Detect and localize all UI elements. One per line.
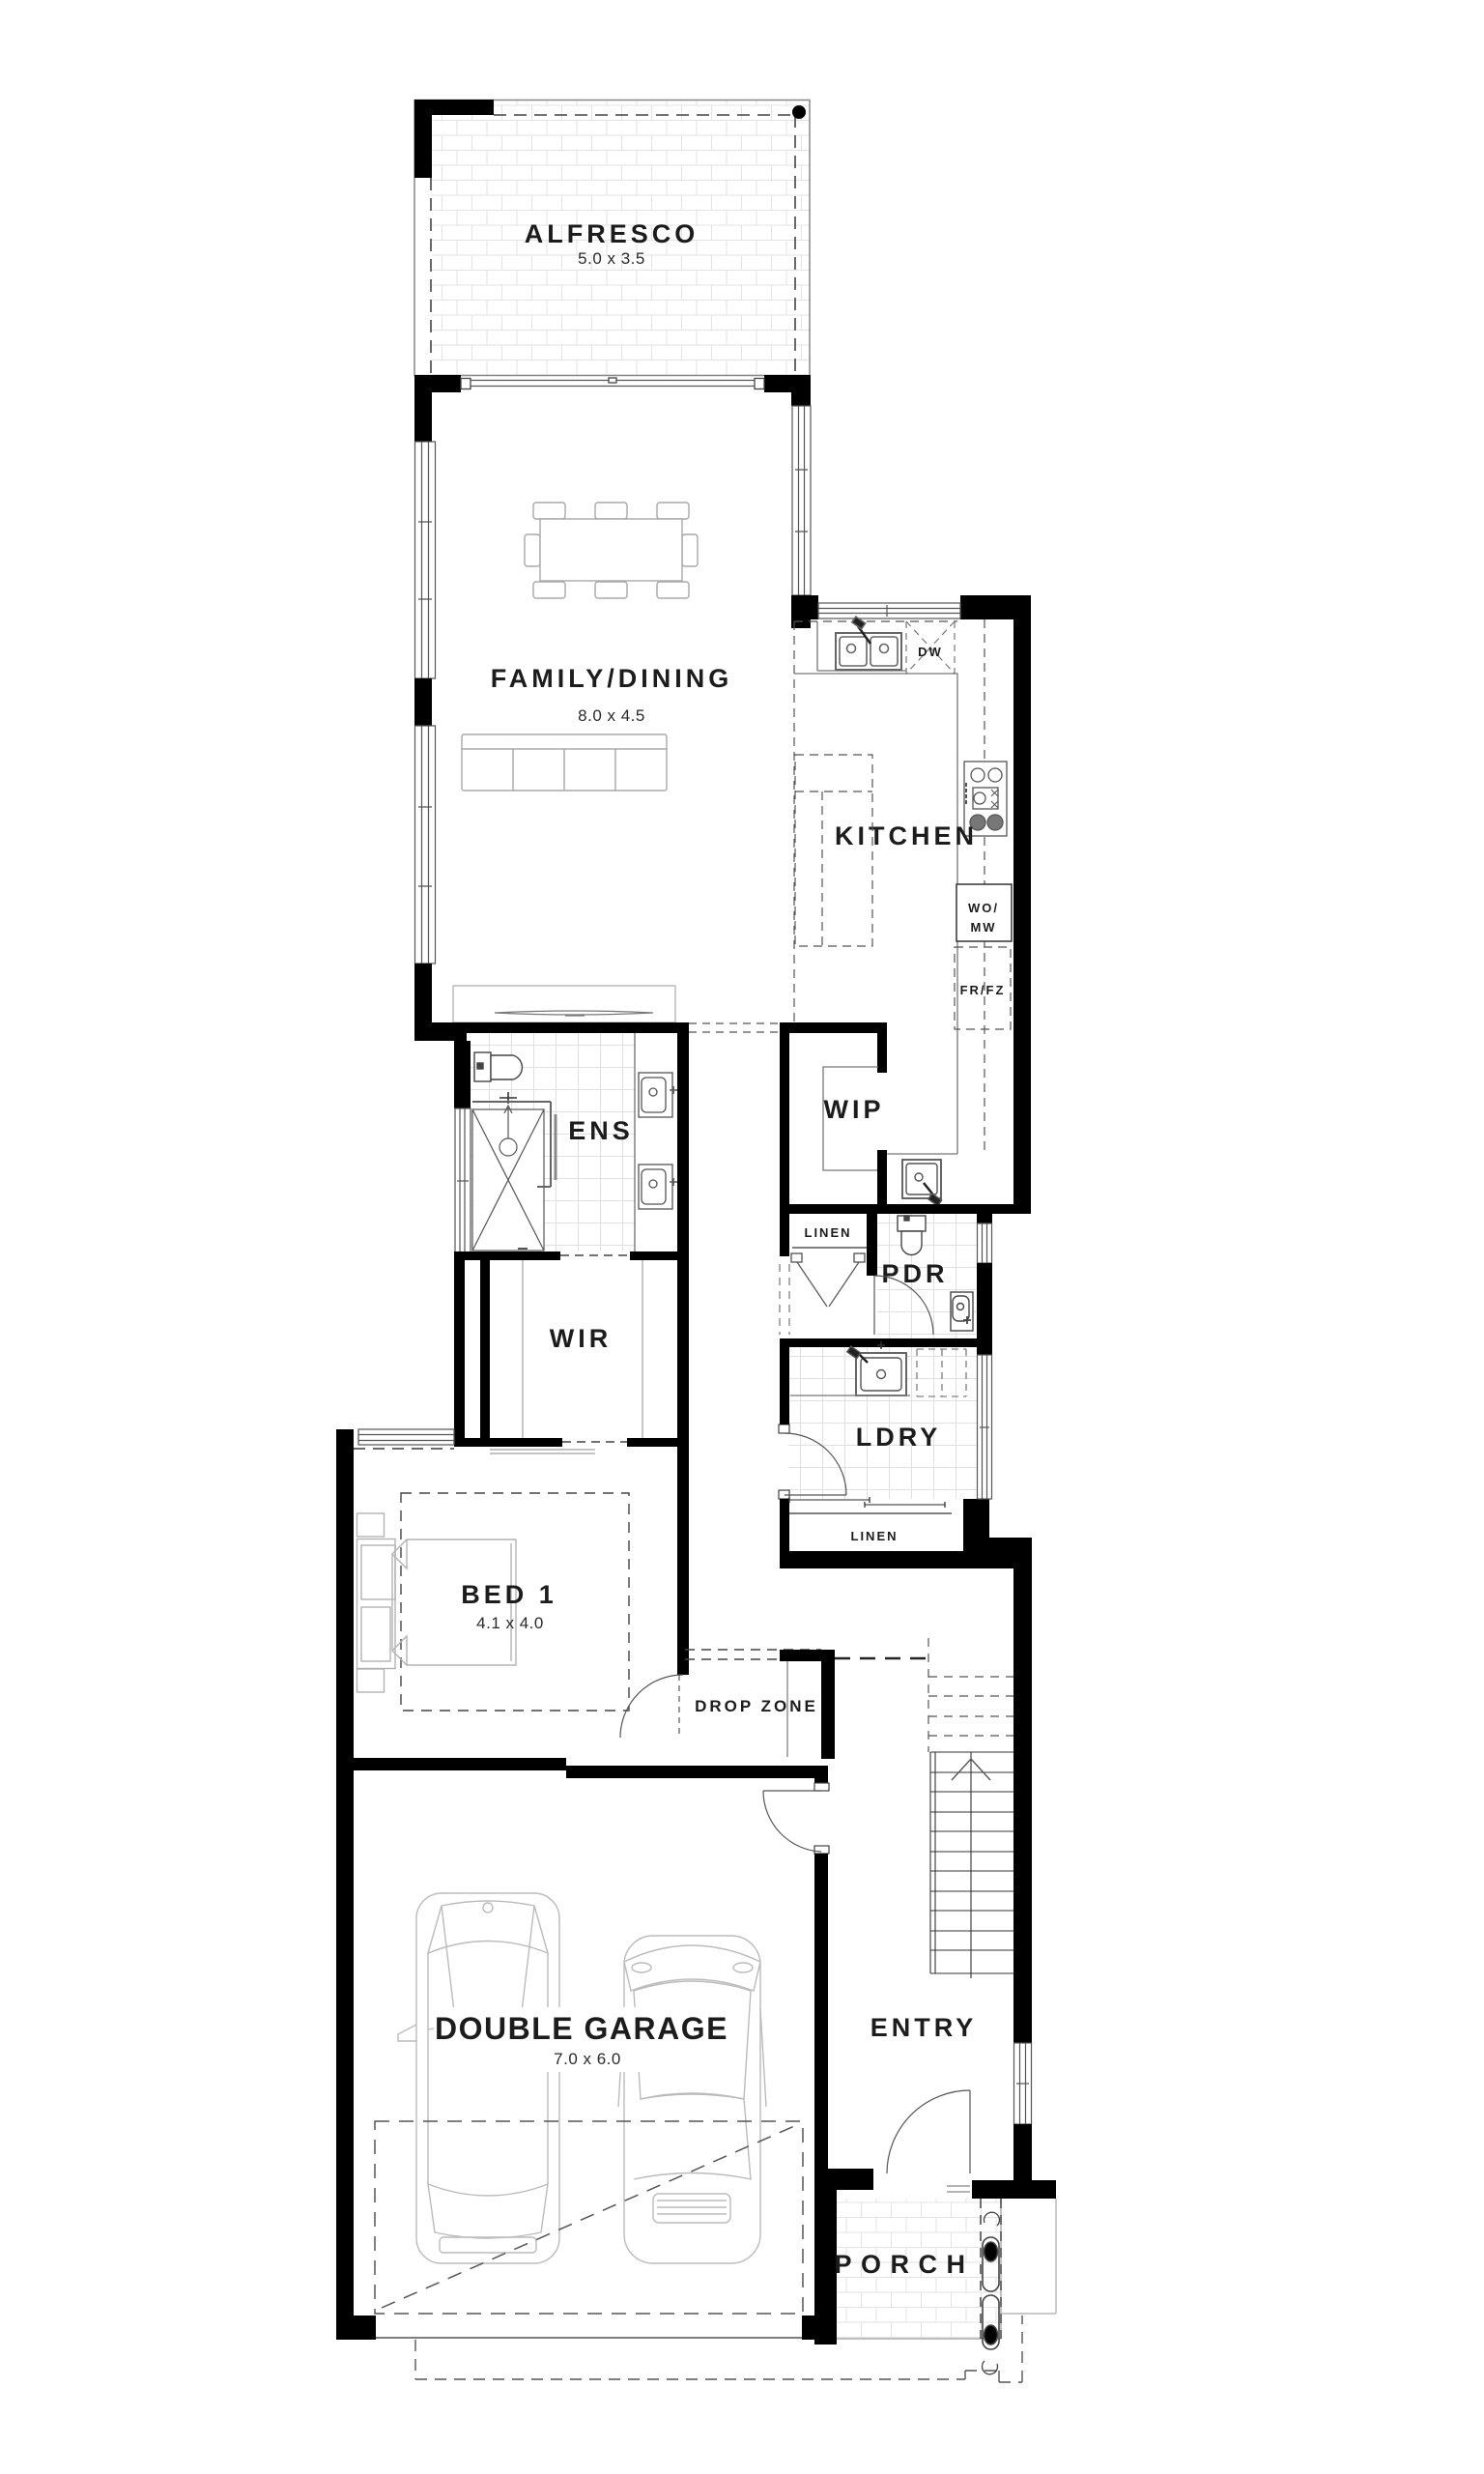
svg-text:DROP ZONE: DROP ZONE [695, 1697, 818, 1715]
svg-text:PDR: PDR [881, 1259, 948, 1288]
svg-text:FAMILY/DINING: FAMILY/DINING [491, 664, 733, 693]
svg-text:ENTRY: ENTRY [870, 2013, 978, 2042]
svg-text:WO/: WO/ [968, 901, 999, 915]
svg-text:LINEN: LINEN [805, 1225, 852, 1240]
svg-text:WIR: WIR [550, 1324, 612, 1353]
svg-text:PORCH: PORCH [834, 2250, 974, 2279]
svg-text:DOUBLE GARAGE: DOUBLE GARAGE [435, 2011, 728, 2046]
svg-text:ALFRESCO: ALFRESCO [525, 219, 699, 248]
svg-text:BED 1: BED 1 [461, 1580, 557, 1609]
svg-text:4.1 x 4.0: 4.1 x 4.0 [476, 1614, 544, 1632]
svg-text:FR/FZ: FR/FZ [960, 983, 1006, 997]
svg-text:7.0 x 6.0: 7.0 x 6.0 [554, 2050, 621, 2068]
svg-text:KITCHEN: KITCHEN [835, 821, 978, 850]
svg-text:LINEN: LINEN [851, 1529, 899, 1543]
svg-text:5.0 x 3.5: 5.0 x 3.5 [578, 249, 645, 268]
svg-text:8.0 x 4.5: 8.0 x 4.5 [578, 706, 645, 725]
svg-text:LDRY: LDRY [856, 1423, 942, 1452]
svg-text:DW: DW [918, 645, 943, 659]
svg-text:WIP: WIP [824, 1095, 885, 1124]
svg-text:ENS: ENS [568, 1116, 634, 1145]
svg-text:MW: MW [970, 920, 996, 935]
